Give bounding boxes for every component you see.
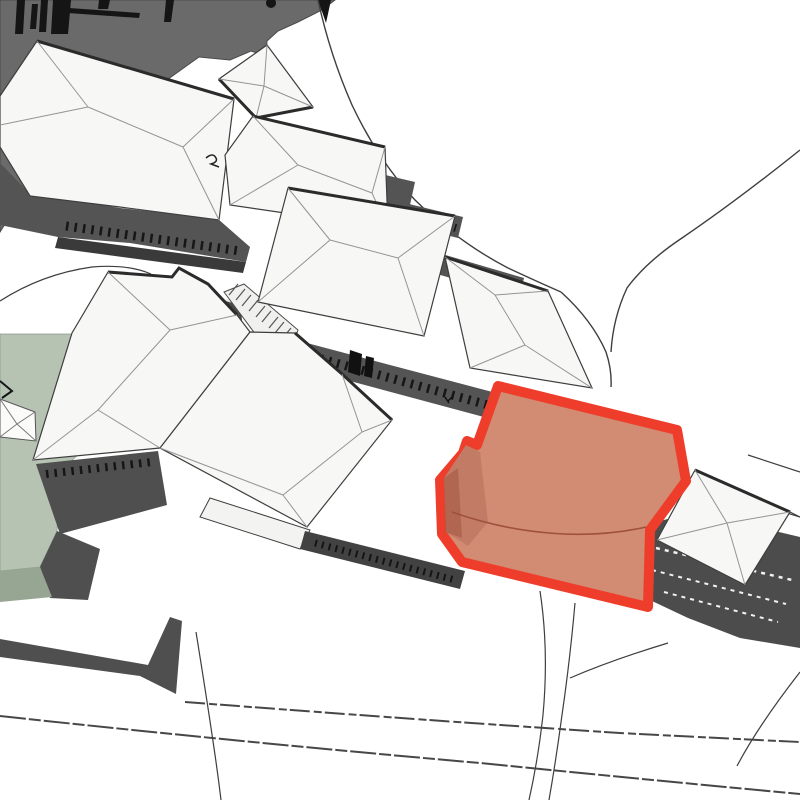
- road-bottom-left: [196, 632, 221, 800]
- window-dark-1: [348, 350, 362, 376]
- site-plan-3d-view: [0, 0, 800, 800]
- road-bottom-edge-2: [0, 716, 800, 794]
- road-bottom-edge-1: [185, 702, 800, 742]
- retaining-wall-bottom-left: [0, 617, 182, 694]
- road-bottom-right-curve: [737, 672, 800, 766]
- road-northeast: [611, 150, 800, 352]
- roof-building-a: [0, 41, 234, 220]
- model-viewport: [0, 0, 800, 800]
- road-stairs-link: [570, 643, 668, 678]
- road-east-edge-1: [748, 455, 800, 472]
